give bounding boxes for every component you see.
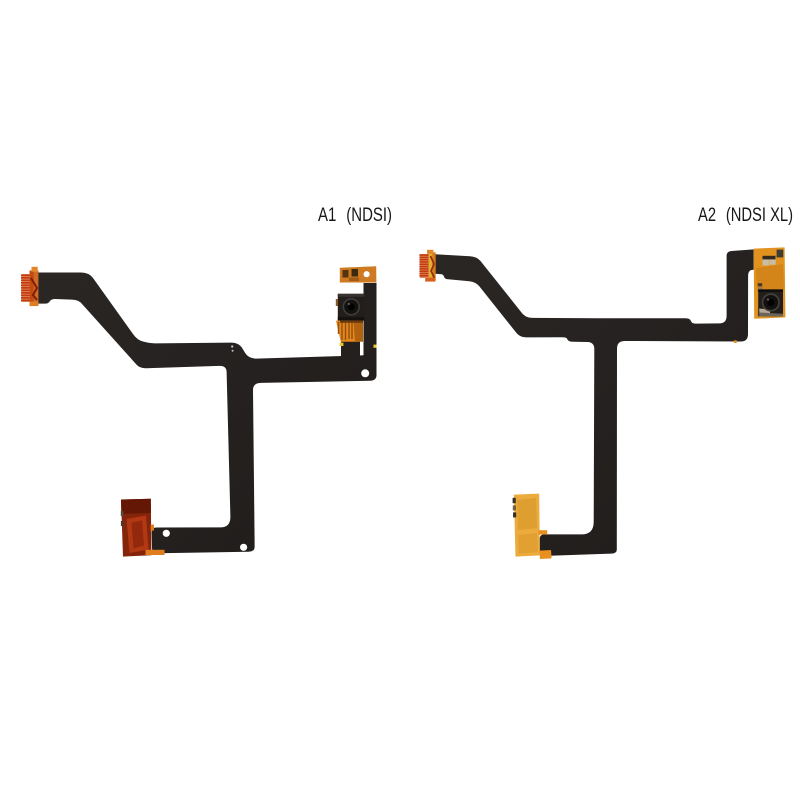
svg-text:A1 (NDSI): A1 (NDSI)	[318, 204, 392, 226]
svg-text:A2 (NDSI XL): A2 (NDSI XL)	[698, 204, 793, 226]
